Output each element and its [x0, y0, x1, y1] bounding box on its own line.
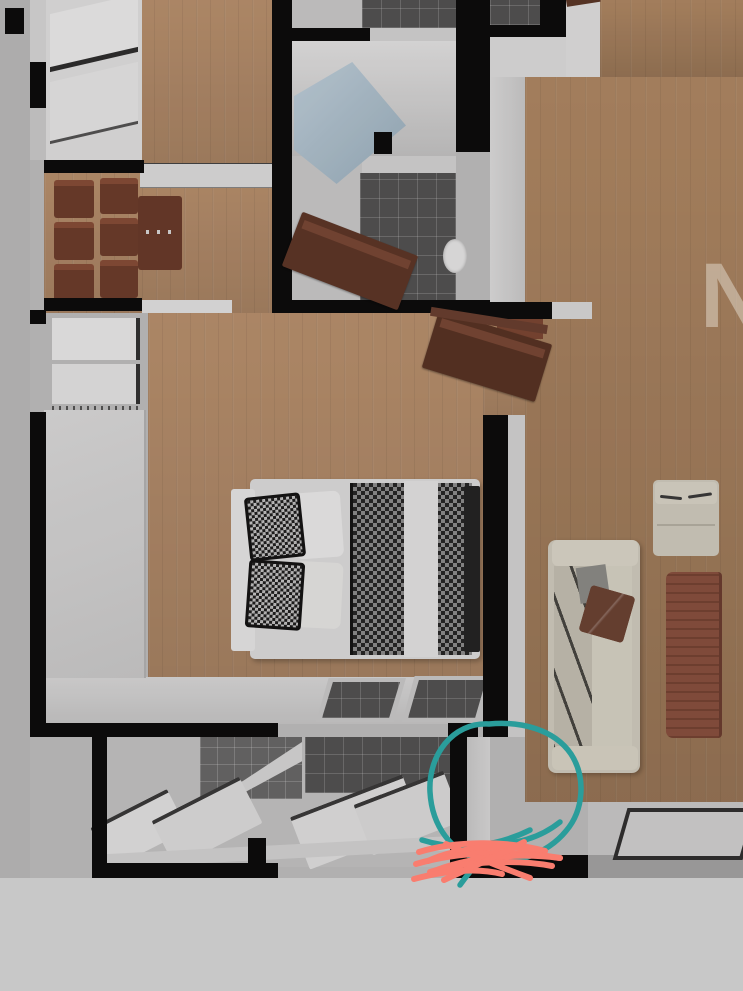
annotation-layer: [0, 0, 743, 991]
floor-plan-canvas: N: [0, 0, 743, 991]
